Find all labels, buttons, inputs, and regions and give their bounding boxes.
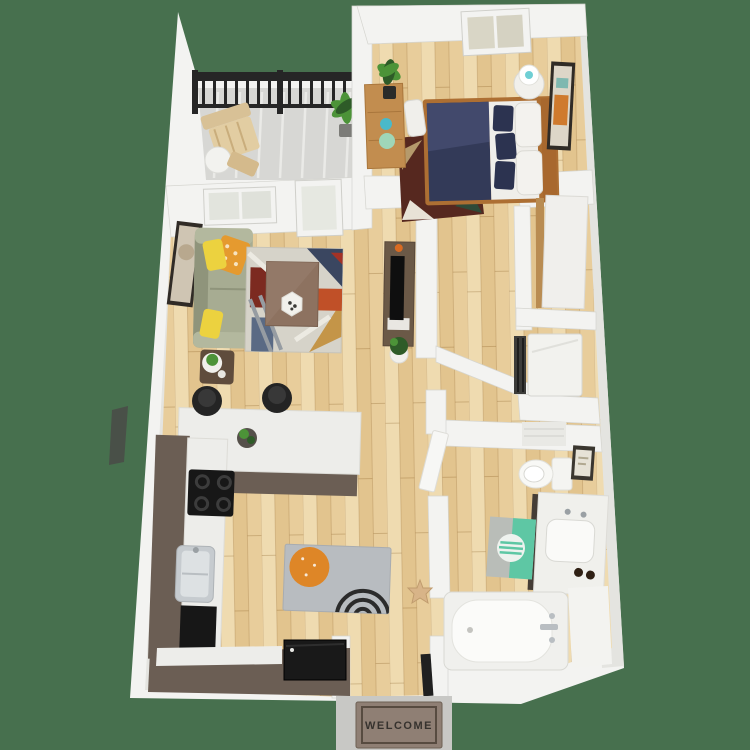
vanity <box>527 492 608 596</box>
balcony-door <box>295 179 343 237</box>
bedside-lamp-shade <box>525 71 533 79</box>
hallway-wall <box>416 206 437 358</box>
tv <box>390 256 405 320</box>
refrigerator <box>284 640 346 680</box>
tub-surround <box>568 586 612 668</box>
tub-drain <box>467 627 473 633</box>
tv-console <box>383 242 415 347</box>
island-plant <box>237 428 257 448</box>
floor-plan-render: WELCOME <box>0 0 750 750</box>
bed-pillow-white <box>516 150 543 195</box>
dresser-decor-tray <box>379 133 395 149</box>
bathtub <box>444 592 568 670</box>
living-rug <box>245 247 343 353</box>
laundry-louver-door <box>514 336 526 394</box>
cooktop <box>187 469 235 517</box>
bath-mat <box>486 516 536 579</box>
dishwasher <box>179 605 217 650</box>
walk-in-closet <box>536 195 588 308</box>
toilet <box>519 458 572 490</box>
coffee-table <box>266 262 319 327</box>
washer <box>528 334 582 396</box>
bed-pillow-navy <box>495 133 517 160</box>
bathroom-left-wall-upper <box>426 390 446 434</box>
living-window <box>203 187 276 225</box>
floor-plan-scene: WELCOME <box>0 0 750 750</box>
kitchen-sink <box>175 545 215 602</box>
welcome-mat: WELCOME <box>356 702 442 748</box>
bed-pillow-white <box>515 102 542 147</box>
bed-pillow-navy <box>494 161 516 190</box>
bar-stool <box>262 383 292 413</box>
kitchen-counter-bottom-top <box>156 646 282 666</box>
living-side-table <box>199 349 234 384</box>
sofa <box>193 228 253 349</box>
laundry-closet <box>514 334 582 396</box>
linen-closet <box>522 422 566 446</box>
dresser-decor-teal <box>380 118 392 130</box>
tub-faucet <box>540 624 558 630</box>
console-plant <box>390 337 408 363</box>
balcony-side-table <box>205 147 231 173</box>
wardrobe <box>542 195 588 308</box>
bar-stool <box>192 386 222 416</box>
laundry-bottom-wall <box>518 394 600 424</box>
bedroom-wall-art <box>547 61 576 150</box>
closet-laundry-divider <box>516 308 596 330</box>
vanity-sink <box>545 519 595 563</box>
bedroom-window <box>461 8 531 55</box>
bed-pillow-navy <box>493 105 514 132</box>
bathroom-wall-art <box>571 445 595 480</box>
bathroom-left-wall-lower <box>428 496 450 598</box>
welcome-mat-text: WELCOME <box>365 720 433 732</box>
bed <box>423 96 560 205</box>
